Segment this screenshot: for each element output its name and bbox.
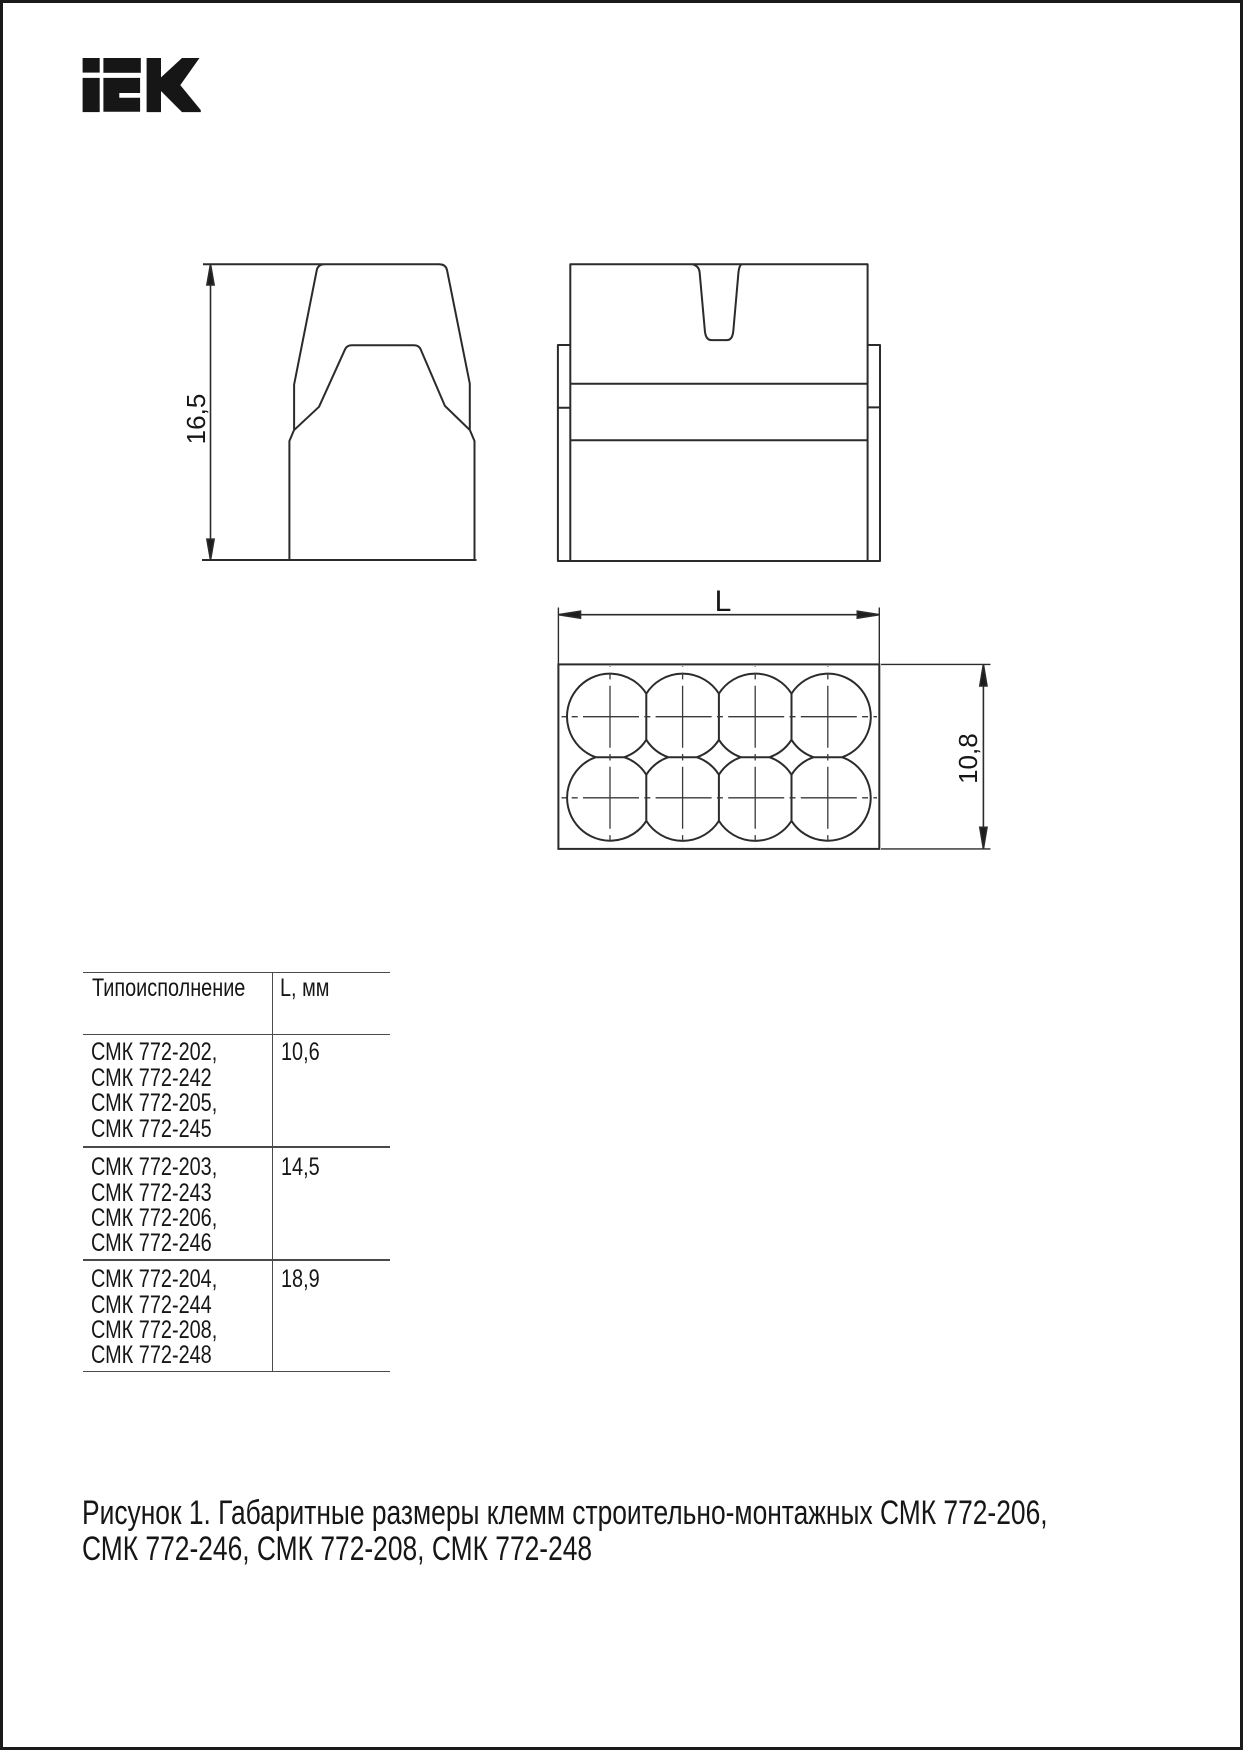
svg-text:L: L <box>715 585 732 618</box>
svg-text:10,8: 10,8 <box>953 733 983 784</box>
svg-text:16,5: 16,5 <box>181 394 211 445</box>
